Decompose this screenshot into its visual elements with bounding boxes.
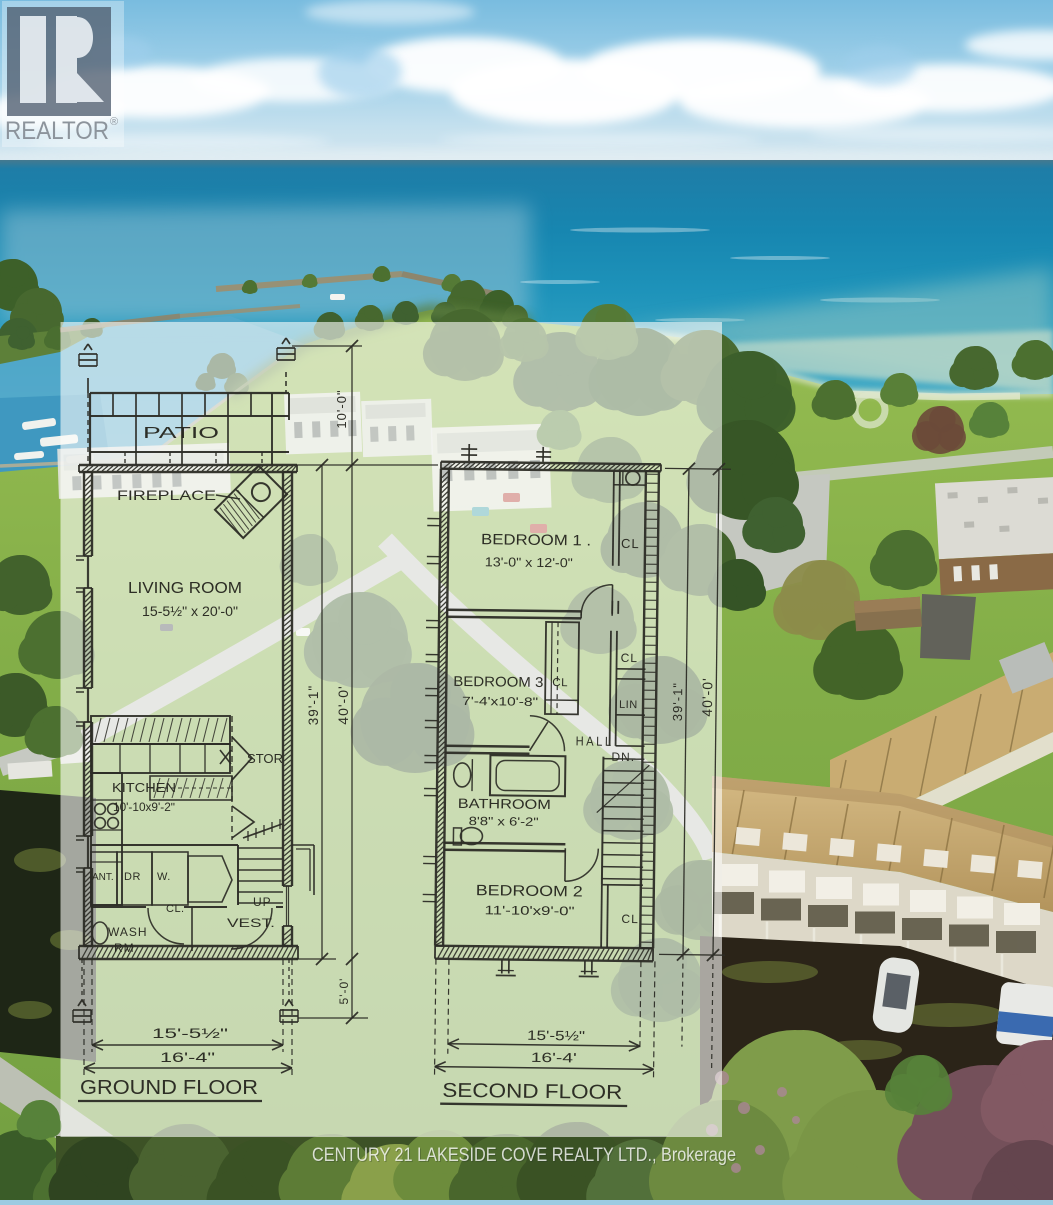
svg-text:8'8ʺ x 6'-2ʺ: 8'8ʺ x 6'-2ʺ xyxy=(469,814,539,829)
svg-text:RM: RM xyxy=(114,941,135,955)
svg-text:5'-0': 5'-0' xyxy=(337,978,351,1005)
svg-text:40'-0': 40'-0' xyxy=(335,685,351,724)
svg-text:GROUND FLOOR: GROUND FLOOR xyxy=(80,1077,258,1099)
svg-text:CL: CL xyxy=(621,536,640,551)
svg-text:UP: UP xyxy=(253,895,272,909)
svg-text:BEDROOM 3: BEDROOM 3 xyxy=(453,673,543,690)
svg-text:16'-4ʺ: 16'-4ʺ xyxy=(160,1049,215,1065)
svg-text:10'-10x9'-2ʺ: 10'-10x9'-2ʺ xyxy=(113,802,175,814)
svg-text:CL: CL xyxy=(552,677,568,689)
svg-text:W.: W. xyxy=(157,871,171,883)
svg-text:BEDROOM 2: BEDROOM 2 xyxy=(476,882,583,900)
svg-text:39'-1ʺ: 39'-1ʺ xyxy=(306,685,321,725)
svg-text:BATHROOM: BATHROOM xyxy=(458,796,551,812)
svg-text:SECOND FLOOR: SECOND FLOOR xyxy=(442,1080,622,1104)
svg-text:DN.: DN. xyxy=(611,750,635,764)
svg-text:13'-0ʺ x 12'-0ʺ: 13'-0ʺ x 12'-0ʺ xyxy=(485,554,574,570)
svg-text:LIVING ROOM: LIVING ROOM xyxy=(128,580,242,597)
svg-text:CL.: CL. xyxy=(166,903,185,915)
svg-text:CL: CL xyxy=(621,651,639,665)
svg-text:STOR: STOR xyxy=(247,751,283,766)
svg-text:CENTURY 21 LAKESIDE COVE REALT: CENTURY 21 LAKESIDE COVE REALTY LTD., Br… xyxy=(312,1144,736,1166)
svg-text:®: ® xyxy=(110,116,118,128)
svg-text:15'-5½ʺ: 15'-5½ʺ xyxy=(152,1025,228,1041)
svg-text:15-5½ʺ x 20'-0ʺ: 15-5½ʺ x 20'-0ʺ xyxy=(142,604,238,619)
svg-text:HALL: HALL xyxy=(576,733,614,748)
svg-text:LIN: LIN xyxy=(619,699,638,711)
svg-text:11'-10'x9'-0ʺ: 11'-10'x9'-0ʺ xyxy=(484,903,574,918)
svg-text:VEST.: VEST. xyxy=(227,916,275,930)
svg-text:7'-4'x10'-8ʺ: 7'-4'x10'-8ʺ xyxy=(462,694,538,709)
svg-text:15'-5½ʺ: 15'-5½ʺ xyxy=(527,1028,585,1044)
svg-text:10'-0ʺ: 10'-0ʺ xyxy=(334,389,349,428)
svg-text:40'-0': 40'-0' xyxy=(699,677,715,717)
svg-text:BEDROOM 1 .: BEDROOM 1 . xyxy=(481,531,591,549)
svg-text:REALTOR: REALTOR xyxy=(5,117,109,145)
svg-text:CL: CL xyxy=(621,912,639,926)
svg-text:39'-1ʺ: 39'-1ʺ xyxy=(670,682,685,721)
svg-text:FIREPLACE: FIREPLACE xyxy=(117,487,216,503)
svg-text:DR: DR xyxy=(124,871,141,883)
svg-text:16'-4': 16'-4' xyxy=(531,1050,577,1066)
svg-text:ANT.: ANT. xyxy=(92,872,114,883)
svg-text:WASH: WASH xyxy=(108,925,148,939)
svg-text:PATIO: PATIO xyxy=(143,425,219,442)
